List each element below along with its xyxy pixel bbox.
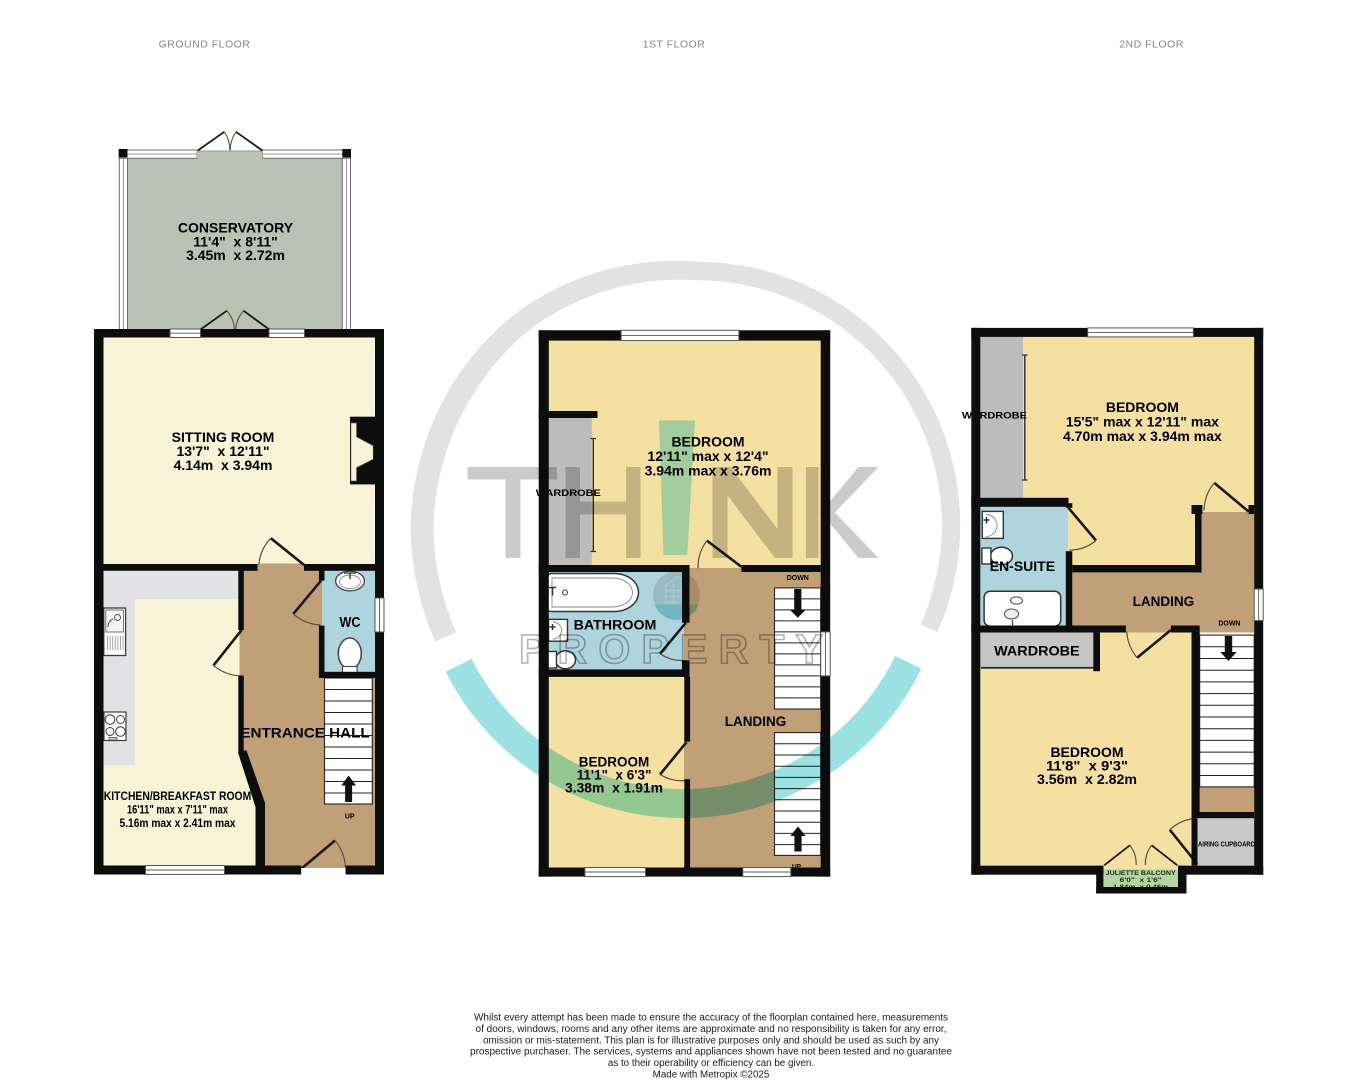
svg-text:Whilst every attempt has been: Whilst every attempt has been made to en… [474,1013,948,1024]
svg-text:4.70m max x 3.94m max: 4.70m max x 3.94m max [1063,428,1222,444]
svg-text:EN-SUITE: EN-SUITE [990,559,1055,574]
svg-text:omission or mis-statement. Thi: omission or mis-statement. This plan is … [483,1035,939,1046]
svg-text:as to their operability or eff: as to their operability or efficiency ca… [608,1058,814,1069]
svg-text:PROPERTY: PROPERTY [519,626,835,672]
svg-text:16'11" max x 7'11" max: 16'11" max x 7'11" max [127,803,228,817]
svg-text:BEDROOM: BEDROOM [1106,399,1179,415]
svg-text:LANDING: LANDING [725,714,787,729]
svg-text:Made with Metropix ©2025: Made with Metropix ©2025 [653,1070,770,1080]
svg-text:1ST FLOOR: 1ST FLOOR [643,39,706,51]
svg-text:2ND FLOOR: 2ND FLOOR [1119,39,1184,51]
svg-text:ENTRANCE HALL: ENTRANCE HALL [240,725,370,741]
svg-text:WC: WC [340,615,361,631]
svg-text:LANDING: LANDING [1133,594,1195,609]
svg-text:3.45m x 2.72m: 3.45m x 2.72m [186,247,285,263]
svg-text:of doors, windows, rooms and a: of doors, windows, rooms and any other i… [476,1024,947,1035]
svg-text:6'0" x 1'6": 6'0" x 1'6" [1120,877,1162,884]
svg-text:3.56m x 2.82m: 3.56m x 2.82m [1037,771,1137,787]
svg-text:KITCHEN/BREAKFAST ROOM: KITCHEN/BREAKFAST ROOM [104,789,252,803]
svg-text:AIRING CUPBOARD: AIRING CUPBOARD [1198,840,1255,849]
svg-text:JULIETTE BALCONY: JULIETTE BALCONY [1106,870,1176,877]
svg-text:GROUND FLOOR: GROUND FLOOR [159,39,251,51]
svg-text:WARDROBE: WARDROBE [994,644,1080,659]
svg-text:4.14m x 3.94m: 4.14m x 3.94m [174,457,273,473]
svg-text:DOWN: DOWN [1218,621,1240,628]
svg-text:UP: UP [345,814,355,821]
svg-text:5.16m max x 2.41m max: 5.16m max x 2.41m max [120,816,236,830]
svg-text:DOWN: DOWN [787,575,809,582]
svg-text:prospective purchaser. The ser: prospective purchaser. The services, sys… [470,1047,953,1058]
